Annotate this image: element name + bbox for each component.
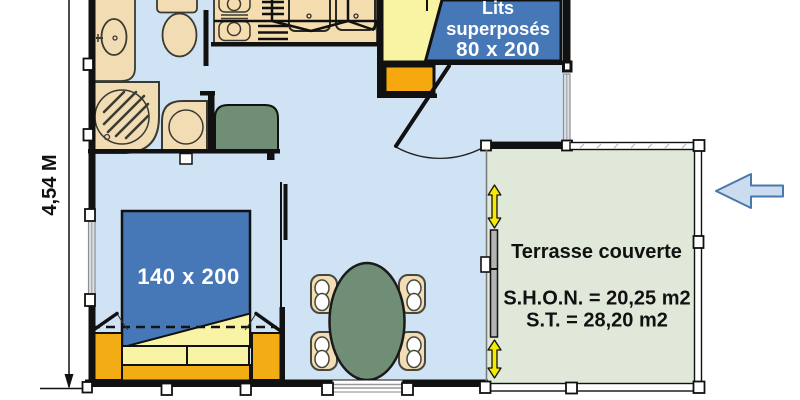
svg-text:S.T. = 28,20 m2: S.T. = 28,20 m2 xyxy=(526,310,668,332)
svg-text:superposés: superposés xyxy=(446,18,550,39)
svg-text:80 x 200: 80 x 200 xyxy=(456,38,540,61)
svg-text:4,54 M: 4,54 M xyxy=(39,154,61,215)
svg-text:140 x 200: 140 x 200 xyxy=(137,264,239,289)
svg-text:S.H.O.N. = 20,25 m2: S.H.O.N. = 20,25 m2 xyxy=(503,288,690,310)
svg-text:Lits: Lits xyxy=(482,0,514,18)
svg-text:Terrasse couverte: Terrasse couverte xyxy=(511,241,682,263)
